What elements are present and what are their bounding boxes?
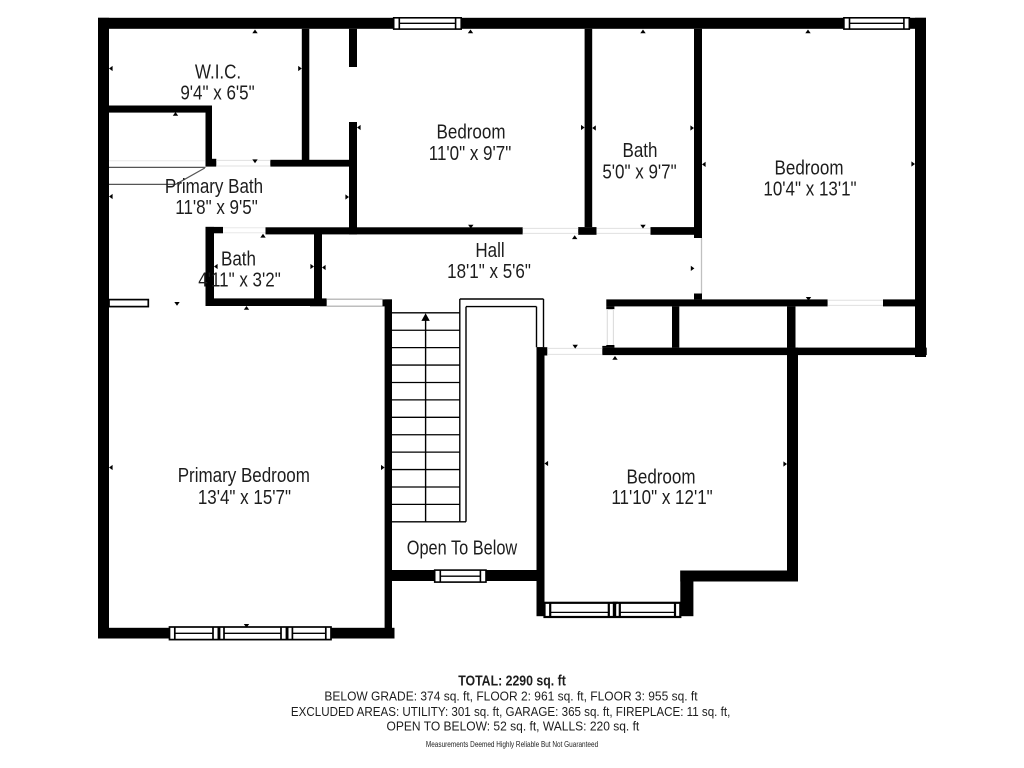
svg-text:Primary Bath: Primary Bath — [165, 175, 263, 198]
svg-text:Primary Bedroom: Primary Bedroom — [178, 464, 310, 487]
svg-text:Measurements Deemed Highly Rel: Measurements Deemed Highly Reliable But … — [426, 740, 598, 749]
svg-text:18'1" x 5'6": 18'1" x 5'6" — [447, 260, 531, 283]
svg-text:Bath: Bath — [221, 247, 256, 270]
svg-text:OPEN TO BELOW: 52 sq. ft, WALL: OPEN TO BELOW: 52 sq. ft, WALLS: 220 sq.… — [387, 719, 640, 734]
svg-text:Bedroom: Bedroom — [437, 120, 506, 143]
svg-text:10'4" x 13'1": 10'4" x 13'1" — [763, 177, 856, 200]
svg-text:W.I.C.: W.I.C. — [195, 60, 241, 83]
svg-text:BELOW GRADE: 374 sq. ft, FLOOR: BELOW GRADE: 374 sq. ft, FLOOR 2: 961 sq… — [324, 689, 698, 704]
svg-text:13'4" x 15'7": 13'4" x 15'7" — [198, 486, 291, 509]
svg-text:11'10" x 12'1": 11'10" x 12'1" — [611, 486, 712, 509]
svg-text:5'0" x 9'7": 5'0" x 9'7" — [602, 160, 676, 183]
svg-text:Hall: Hall — [475, 239, 504, 262]
svg-text:4'11" x 3'2": 4'11" x 3'2" — [198, 268, 280, 291]
svg-text:11'8" x 9'5": 11'8" x 9'5" — [175, 196, 257, 219]
svg-text:Bedroom: Bedroom — [775, 156, 844, 179]
svg-text:Open To Below: Open To Below — [407, 536, 518, 559]
svg-text:9'4" x 6'5": 9'4" x 6'5" — [180, 81, 254, 104]
svg-text:Bedroom: Bedroom — [627, 465, 696, 488]
svg-text:Bath: Bath — [623, 139, 658, 162]
svg-text:TOTAL: 2290 sq. ft: TOTAL: 2290 sq. ft — [458, 672, 566, 688]
svg-text:EXCLUDED AREAS: UTILITY: 301 s: EXCLUDED AREAS: UTILITY: 301 sq. ft, GAR… — [291, 704, 730, 719]
svg-text:11'0" x 9'7": 11'0" x 9'7" — [429, 141, 511, 164]
